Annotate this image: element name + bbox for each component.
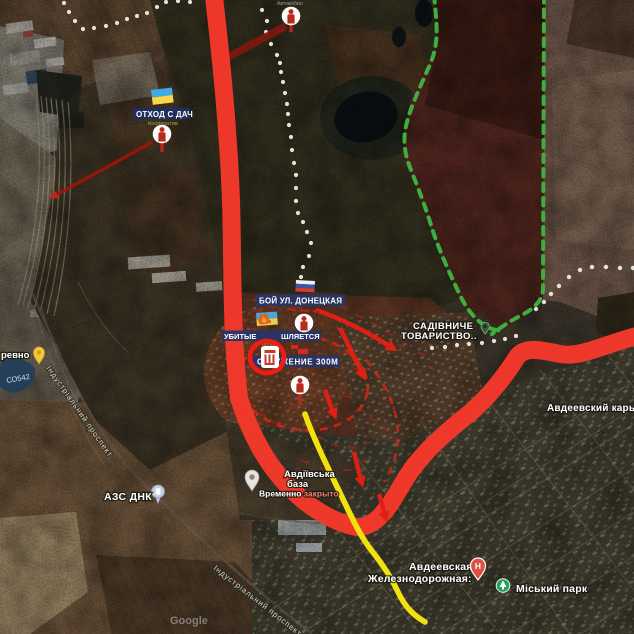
svg-text:ревно: ревно <box>1 350 30 361</box>
svg-text:ОТХОД С ДАЧ: ОТХОД С ДАЧ <box>136 110 193 119</box>
svg-text:УБИТЫЕ: УБИТЫЕ <box>224 332 256 341</box>
svg-text:Временно закрыто: Временно закрыто <box>259 489 339 499</box>
svg-text:Железнодорожная:: Железнодорожная: <box>367 573 472 585</box>
svg-text:ШЛЯЕТСЯ: ШЛЯЕТСЯ <box>281 332 320 341</box>
svg-text:ТОВАРИСТВО..: ТОВАРИСТВО.. <box>401 331 477 342</box>
svg-text:H: H <box>475 561 481 571</box>
svg-text:Авдеевский карьер: Авдеевский карьер <box>547 403 634 414</box>
svg-text:Google: Google <box>170 615 208 627</box>
svg-text:АЗС ДНК: АЗС ДНК <box>104 491 152 503</box>
svg-text:Автомобил: Автомобил <box>277 1 303 7</box>
svg-text:БОЙ УЛ. ДОНЕЦКАЯ: БОЙ УЛ. ДОНЕЦКАЯ <box>259 297 342 306</box>
svg-text:Міський парк: Міський парк <box>516 583 588 595</box>
svg-text:Авдеевская: Авдеевская <box>409 561 473 573</box>
